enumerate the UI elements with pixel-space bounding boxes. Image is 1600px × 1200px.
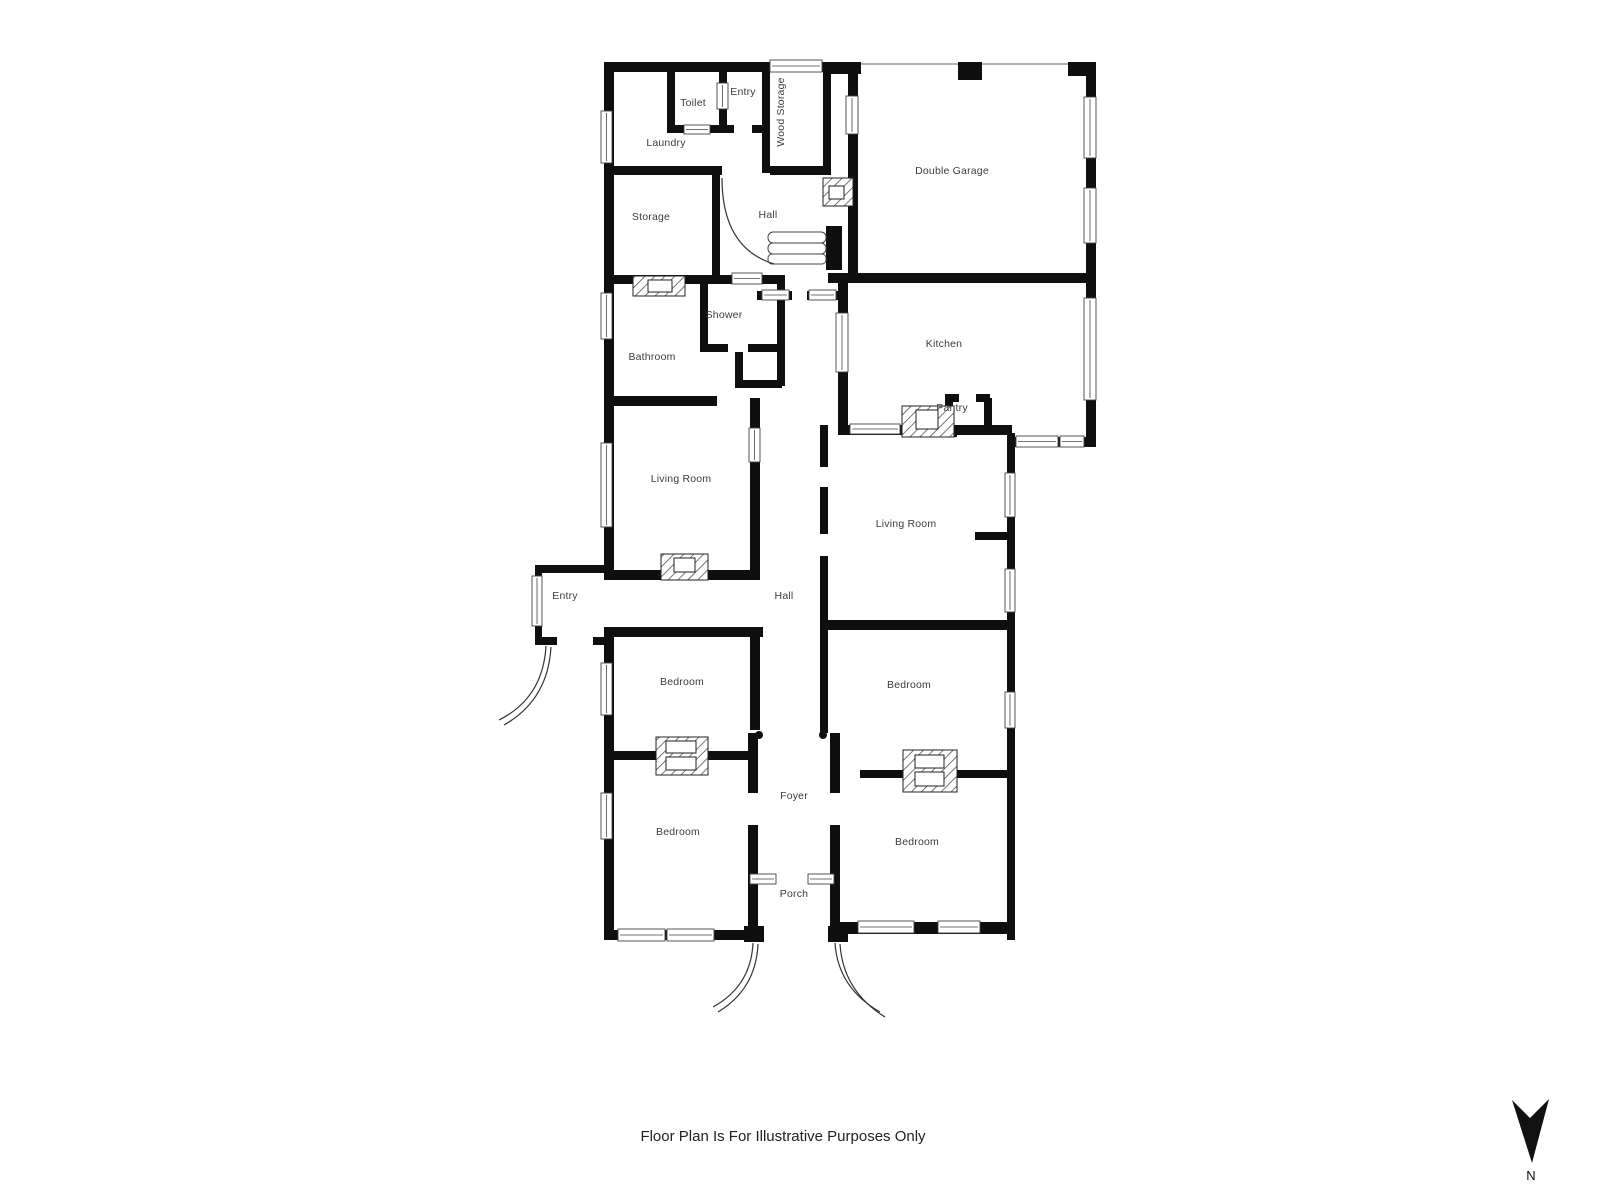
room-label-living-right: Living Room: [876, 518, 937, 530]
room-label-toilet: Toilet: [680, 97, 706, 109]
room-label-porch: Porch: [780, 888, 808, 900]
room-label-entry-top: Entry: [730, 86, 756, 98]
floor-plan-svg: Toilet Entry Laundry Wood Storage Double…: [0, 0, 1600, 1200]
room-label-living-left: Living Room: [651, 473, 712, 485]
room-label-bedroom-lb: Bedroom: [656, 826, 700, 838]
room-label-entry-left: Entry: [552, 590, 578, 602]
room-label-storage: Storage: [632, 211, 670, 223]
north-arrow-icon: [1512, 1099, 1549, 1163]
room-label-hall-corridor: Hall: [775, 590, 794, 602]
room-label-bedroom-lt: Bedroom: [660, 676, 704, 688]
room-label-laundry: Laundry: [646, 137, 686, 149]
room-label-bedroom-rt: Bedroom: [887, 679, 931, 691]
room-label-bathroom: Bathroom: [628, 351, 675, 363]
stairs: [768, 232, 826, 264]
room-label-hall-upper: Hall: [759, 209, 778, 221]
room-label-shower: Shower: [706, 309, 743, 321]
fireplaces-and-fixtures: [633, 178, 957, 792]
floor-plan-page: Toilet Entry Laundry Wood Storage Double…: [0, 0, 1600, 1200]
compass-north-label: N: [1526, 1168, 1535, 1183]
room-label-bedroom-rb: Bedroom: [895, 836, 939, 848]
compass: N: [1512, 1099, 1549, 1183]
room-label-kitchen: Kitchen: [926, 338, 962, 350]
room-label-pantry: Pantry: [936, 402, 968, 414]
door-pivots: [755, 731, 827, 739]
room-label-wood-storage: Wood Storage: [775, 77, 787, 146]
room-label-double-garage: Double Garage: [915, 165, 989, 177]
footer-disclaimer: Floor Plan Is For Illustrative Purposes …: [640, 1128, 926, 1145]
room-label-foyer: Foyer: [780, 790, 808, 802]
